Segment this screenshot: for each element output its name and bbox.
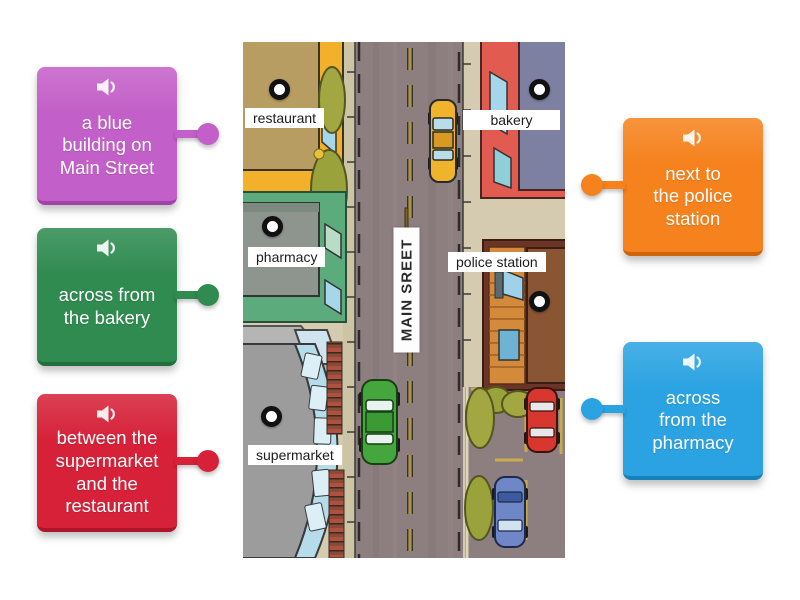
card-connector xyxy=(175,284,219,306)
card-connector xyxy=(581,398,625,420)
produce-stand xyxy=(329,470,344,558)
speaker-icon[interactable] xyxy=(680,351,706,373)
map-label-supermarket: supermarket xyxy=(248,445,342,465)
speaker-icon[interactable] xyxy=(94,76,120,98)
answer-card-blue-building[interactable]: a blue building on Main Street xyxy=(37,67,177,205)
connector-dot xyxy=(197,284,219,306)
map-pin-pharmacy[interactable] xyxy=(262,216,283,237)
answer-card-label: across from the pharmacy xyxy=(646,373,739,476)
map-label-restaurant: restaurant xyxy=(245,108,324,128)
answer-card-across-bakery[interactable]: across from the bakery xyxy=(37,228,177,366)
map-label-pharmacy: pharmacy xyxy=(248,247,325,267)
connector-dot xyxy=(581,174,603,196)
answer-card-next-police[interactable]: next to the police station xyxy=(623,118,763,256)
card-connector xyxy=(175,450,219,472)
answer-card-between-supermarket-restaurant[interactable]: between the supermarket and the restaura… xyxy=(37,394,177,532)
map-pin-bakery[interactable] xyxy=(529,79,550,100)
answer-card-label: across from the bakery xyxy=(53,259,162,362)
card-connector xyxy=(175,123,219,145)
blue-car xyxy=(492,477,528,547)
answer-card-label: next to the police station xyxy=(647,149,738,252)
taxi-car xyxy=(428,100,458,182)
green-car xyxy=(359,380,400,464)
connector-dot xyxy=(581,398,603,420)
map-pin-police-station[interactable] xyxy=(529,291,550,312)
card-connector xyxy=(581,174,625,196)
map-label-police-station: police station xyxy=(448,252,546,272)
speaker-icon[interactable] xyxy=(680,127,706,149)
answer-card-across-pharmacy[interactable]: across from the pharmacy xyxy=(623,342,763,480)
map-pin-supermarket[interactable] xyxy=(261,406,282,427)
answer-card-label: between the supermarket and the restaura… xyxy=(50,425,165,528)
red-car xyxy=(524,388,560,452)
street-map: MAIN SREET restaurant bakery pharmacy po… xyxy=(243,42,565,558)
street-name-sign: MAIN SREET xyxy=(394,228,420,353)
speaker-icon[interactable] xyxy=(94,403,120,425)
produce-stand xyxy=(327,342,342,434)
map-label-bakery: bakery xyxy=(463,110,560,130)
map-pin-restaurant[interactable] xyxy=(269,79,290,100)
connector-dot xyxy=(197,450,219,472)
speaker-icon[interactable] xyxy=(94,237,120,259)
answer-card-label: a blue building on Main Street xyxy=(54,98,161,201)
connector-dot xyxy=(197,123,219,145)
activity-stage: a blue building on Main Street across fr… xyxy=(0,0,800,600)
